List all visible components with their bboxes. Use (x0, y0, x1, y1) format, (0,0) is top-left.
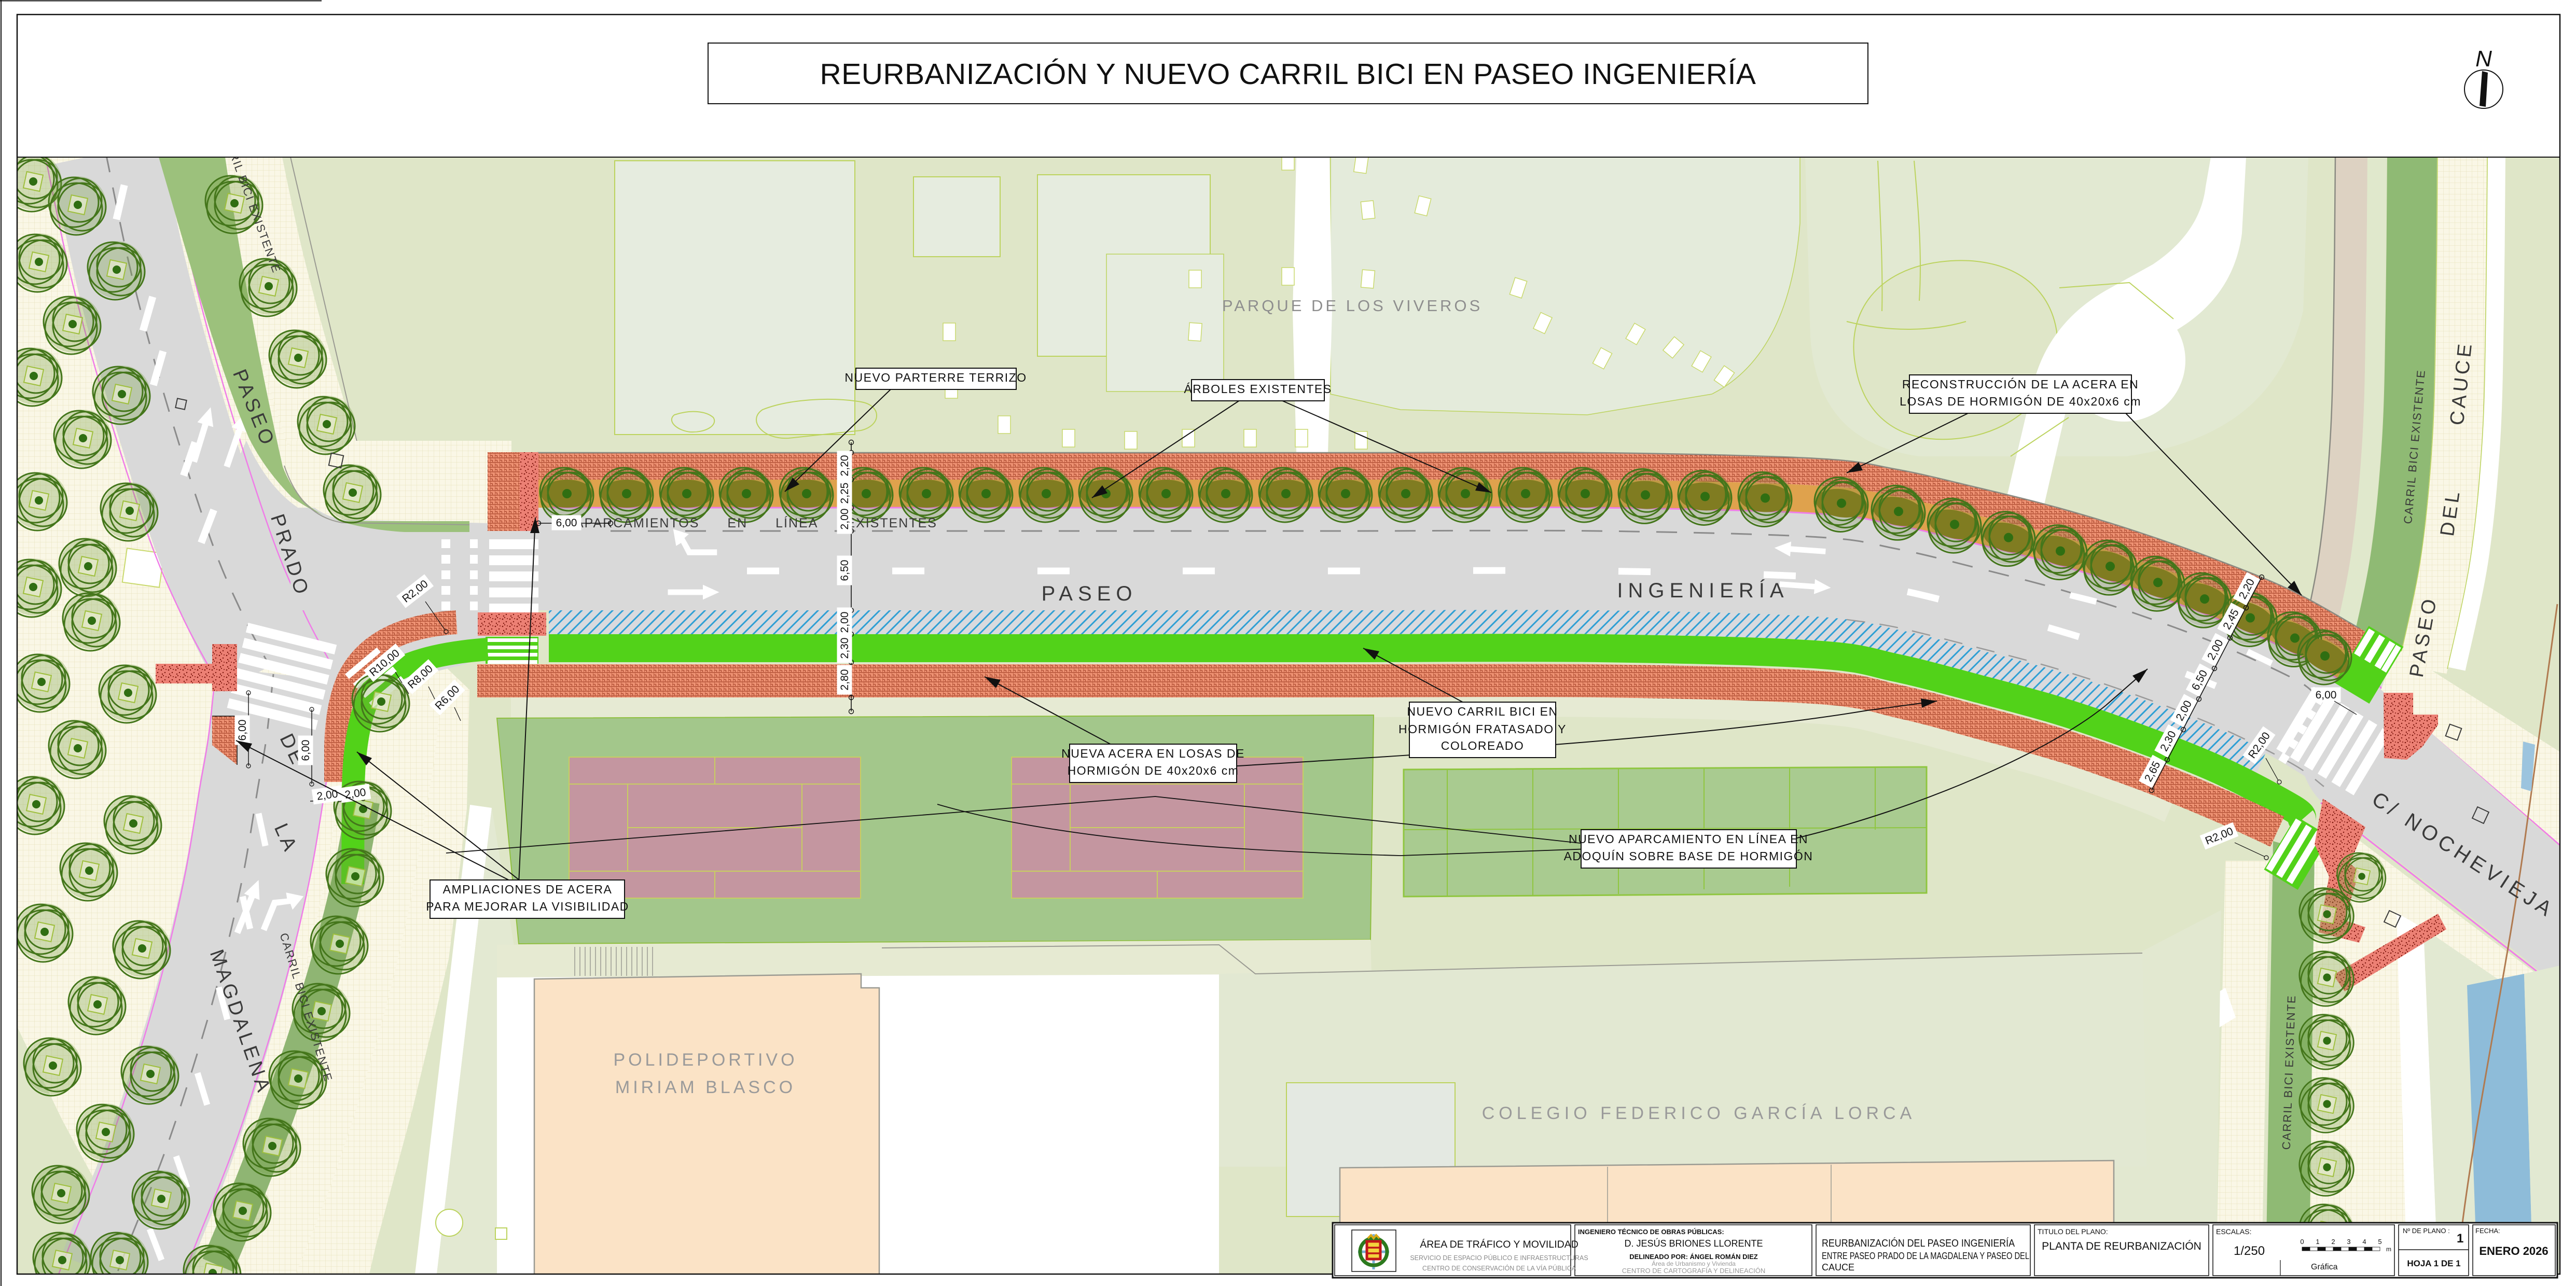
svg-text:FECHA:: FECHA: (2475, 1227, 2500, 1235)
svg-text:COLEGIO FEDERICO GARCÍA LOR: COLEGIO FEDERICO GARCÍA LORCA (1482, 1103, 1916, 1123)
svg-text:Nº DE PLANO :: Nº DE PLANO : (2403, 1227, 2450, 1235)
svg-text:6,00: 6,00 (300, 740, 312, 761)
svg-text:NUEVO APARCAMIENTO EN LÍNEA EN: NUEVO APARCAMIENTO EN LÍNEA EN (1569, 832, 1808, 846)
svg-text:6,00: 6,00 (556, 517, 577, 529)
svg-text:PLANTA DE REURBANIZACIÓN: PLANTA DE REURBANIZACIÓN (2042, 1240, 2201, 1252)
svg-text:4: 4 (2362, 1238, 2366, 1246)
svg-text:PARQUE DE LOS VIVEROS: PARQUE DE LOS VIVEROS (1222, 297, 1483, 315)
svg-text:NUEVO PARTERRE TERRIZO: NUEVO PARTERRE TERRIZO (844, 371, 1027, 384)
svg-text:N: N (2475, 46, 2492, 72)
svg-text:6,00: 6,00 (2316, 689, 2337, 701)
svg-text:APARCAMIENTOS EN LÍNEA EXIS: APARCAMIENTOS EN LÍNEA EXISTENTES (575, 515, 937, 530)
svg-text:ENERO 2026: ENERO 2026 (2479, 1245, 2548, 1257)
svg-text:ÁRBOLES EXISTENTES: ÁRBOLES EXISTENTES (1184, 382, 1332, 396)
svg-text:D. JESÚS BRIONES LLORENTE: D. JESÚS BRIONES LLORENTE (1624, 1238, 1763, 1249)
svg-text:1: 1 (2316, 1238, 2319, 1246)
svg-text:2: 2 (2331, 1238, 2335, 1246)
svg-text:1: 1 (2457, 1232, 2463, 1246)
svg-text:3: 3 (2347, 1238, 2350, 1246)
svg-text:1/250: 1/250 (2234, 1244, 2265, 1258)
svg-text:INGENIERÍA: INGENIERÍA (1617, 579, 1789, 602)
svg-text:6,00: 6,00 (237, 720, 248, 741)
svg-text:NUEVA ACERA EN LOSAS DE: NUEVA ACERA EN LOSAS DE (1061, 747, 1245, 760)
svg-text:CENTRO DE CONSERVACIÓN DE LA V: CENTRO DE CONSERVACIÓN DE LA VÍA PÚBLICA (1422, 1264, 1576, 1272)
svg-text:HORMIGÓN FRATASADO Y: HORMIGÓN FRATASADO Y (1398, 722, 1567, 736)
svg-text:ESCALAS:: ESCALAS: (2216, 1227, 2251, 1236)
svg-text:2,00: 2,00 (839, 612, 851, 633)
svg-text:ENTRE PASEO PRADO DE LA MAGDAL: ENTRE PASEO PRADO DE LA MAGDALENA Y PASE… (1822, 1251, 2029, 1261)
svg-text:REURBANIZACIÓN DEL PASEO INGEN: REURBANIZACIÓN DEL PASEO INGENIERÍA (1822, 1237, 2015, 1249)
svg-text:RECONSTRUCCIÓN DE LA ACERA EN: RECONSTRUCCIÓN DE LA ACERA EN (1902, 378, 2139, 391)
svg-text:COLOREADO: COLOREADO (1441, 739, 1524, 752)
svg-text:LOSAS DE HORMIGÓN DE 40x20x6 c: LOSAS DE HORMIGÓN DE 40x20x6 cm (1900, 395, 2141, 408)
svg-text:5: 5 (2378, 1238, 2381, 1246)
svg-text:0: 0 (2300, 1238, 2304, 1246)
svg-text:Área de Urbanismo y Vivienda: Área de Urbanismo y Vivienda (1652, 1260, 1736, 1267)
svg-text:MIRIAM BLASCO: MIRIAM BLASCO (615, 1078, 796, 1097)
svg-text:HORMIGÓN DE 40x20x6 cm: HORMIGÓN DE 40x20x6 cm (1068, 764, 1239, 777)
svg-text:2,00: 2,00 (839, 509, 851, 530)
svg-text:2,80: 2,80 (839, 669, 851, 691)
svg-text:CENTRO DE CARTOGRAFÍA Y DELINE: CENTRO DE CARTOGRAFÍA Y DELINEACIÓN (1622, 1267, 1765, 1275)
svg-text:2,25: 2,25 (839, 483, 851, 504)
svg-text:ADOQUÍN SOBRE BASE DE HORMIGÓN: ADOQUÍN SOBRE BASE DE HORMIGÓN (1564, 849, 1813, 863)
svg-text:NUEVO CARRIL BICI EN: NUEVO CARRIL BICI EN (1407, 705, 1558, 718)
svg-text:Gráfica: Gráfica (2311, 1263, 2338, 1271)
svg-text:REURBANIZACIÓN Y NUEVO CARRIL: REURBANIZACIÓN Y NUEVO CARRIL BICI EN PA… (820, 58, 1756, 91)
svg-text:m: m (2386, 1246, 2391, 1253)
svg-text:HOJA 1 DE 1: HOJA 1 DE 1 (2407, 1259, 2460, 1268)
svg-text:6,50: 6,50 (839, 560, 851, 581)
svg-text:SERVICIO DE ESPACIO PÚBLICO E: SERVICIO DE ESPACIO PÚBLICO E INFRAESTRU… (1410, 1254, 1588, 1262)
svg-text:TITULO DEL PLANO:: TITULO DEL PLANO: (2038, 1227, 2108, 1236)
svg-text:2,20: 2,20 (839, 455, 851, 477)
svg-text:INGENIERO TÉCNICO DE OBRAS PÚB: INGENIERO TÉCNICO DE OBRAS PÚBLICAS: (1578, 1228, 1724, 1236)
svg-text:CAUCE: CAUCE (1822, 1262, 1854, 1273)
svg-text:2,30: 2,30 (839, 638, 851, 659)
svg-text:POLIDEPORTIVO: POLIDEPORTIVO (613, 1050, 797, 1070)
svg-text:ÁREA DE TRÁFICO Y MOVILIDAD: ÁREA DE TRÁFICO Y MOVILIDAD (1420, 1238, 1578, 1250)
svg-text:PASEO: PASEO (1042, 582, 1138, 605)
svg-text:PARA MEJORAR LA VISIBILIDAD: PARA MEJORAR LA VISIBILIDAD (426, 900, 629, 913)
svg-text:DELINEADO POR: ÁNGEL ROMÁN DIE: DELINEADO POR: ÁNGEL ROMÁN DIEZ (1629, 1253, 1758, 1261)
svg-text:AMPLIACIONES DE ACERA: AMPLIACIONES DE ACERA (443, 883, 613, 896)
